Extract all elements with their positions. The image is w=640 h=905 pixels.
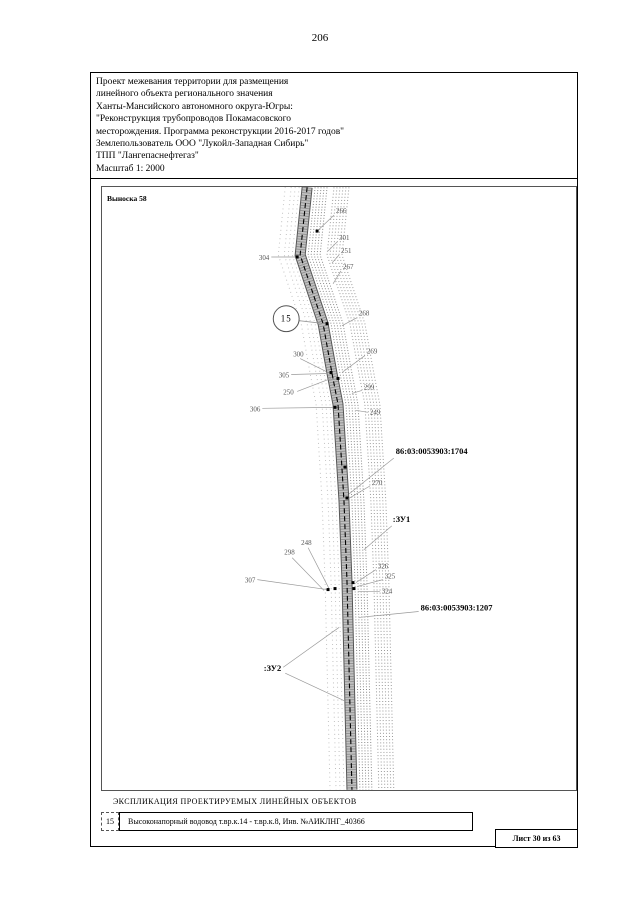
legend-row-number: 15 bbox=[101, 812, 119, 831]
leader-line bbox=[297, 378, 331, 391]
point-number-label: 307 bbox=[245, 577, 256, 585]
point-number-label: 305 bbox=[279, 371, 290, 379]
header-line: "Реконструкция трубопроводов Покамасовск… bbox=[96, 113, 572, 125]
point-number-label: 324 bbox=[382, 588, 393, 596]
point-number-label: 299 bbox=[364, 383, 375, 391]
leader-line bbox=[332, 255, 339, 263]
header-line: линейного объекта регионального значения bbox=[96, 88, 572, 100]
boundary-point-marker bbox=[327, 588, 330, 591]
point-number-label: 251 bbox=[341, 247, 352, 255]
leader-line bbox=[333, 271, 341, 284]
boundary-point-marker bbox=[316, 230, 319, 233]
point-number-label: 266 bbox=[336, 207, 347, 215]
point-number-label: 300 bbox=[293, 351, 304, 359]
leader-line bbox=[356, 570, 376, 583]
point-number-label: 249 bbox=[370, 408, 381, 416]
header-line: ТПП "Лангепаснефтегаз" bbox=[96, 150, 572, 162]
header-line: месторождения. Программа реконструкции 2… bbox=[96, 126, 572, 138]
drawing-sheet-frame: Проект межевания территории для размещен… bbox=[90, 72, 578, 847]
leader-line bbox=[283, 627, 339, 667]
leader-line bbox=[257, 580, 327, 590]
boundary-point-marker bbox=[351, 581, 354, 584]
header-line: Землепользователь ООО "Лукойл-Западная С… bbox=[96, 138, 572, 150]
point-number-label: 301 bbox=[339, 234, 350, 242]
leader-line bbox=[317, 215, 334, 231]
leader-line bbox=[328, 242, 337, 251]
point-number-label: 270 bbox=[372, 479, 383, 487]
survey-plan-svg: 2663012512673042683002693052502993062498… bbox=[102, 187, 576, 790]
boundary-point-marker bbox=[334, 406, 337, 409]
parcel-label: 86:03:0053903:1207 bbox=[421, 602, 494, 612]
parcel-label: :ЗУ1 bbox=[393, 514, 411, 524]
parcel-label: 86:03:0053903:1704 bbox=[396, 446, 469, 456]
leader-line bbox=[308, 548, 329, 589]
title-block: Проект межевания территории для размещен… bbox=[91, 73, 577, 179]
point-number-label: 250 bbox=[283, 388, 294, 396]
document-page: 206 Проект межевания территории для разм… bbox=[0, 0, 640, 905]
leader-line bbox=[342, 318, 357, 326]
page-number: 206 bbox=[0, 32, 640, 44]
leader-line bbox=[356, 410, 368, 412]
map-view: Выноска 58 26630125126730426830026930525… bbox=[101, 186, 577, 791]
boundary-point-marker bbox=[330, 371, 333, 374]
point-number-label: 298 bbox=[284, 549, 295, 557]
legend-row: 15 Высоконапорный водовод т.вр.к.14 - т.… bbox=[101, 812, 473, 831]
point-number-label: 326 bbox=[378, 563, 389, 571]
boundary-point-marker bbox=[296, 255, 299, 258]
header-line: Масштаб 1: 2000 bbox=[96, 163, 572, 175]
boundary-point-marker bbox=[345, 496, 348, 499]
point-number-label: 269 bbox=[367, 348, 378, 356]
header-line: Проект межевания территории для размещен… bbox=[96, 76, 572, 88]
boundary-point-marker bbox=[337, 377, 340, 380]
leader-line bbox=[300, 359, 326, 372]
boundary-point-marker bbox=[326, 322, 329, 325]
header-line: Ханты-Мансийского автономного округа-Югр… bbox=[96, 101, 572, 113]
sheet-counter: Лист 30 из 63 bbox=[495, 829, 578, 848]
point-number-label: 304 bbox=[259, 254, 270, 262]
leader-line bbox=[285, 673, 345, 701]
boundary-point-marker bbox=[352, 587, 355, 590]
point-number-label: 306 bbox=[250, 405, 261, 413]
point-number-label: 268 bbox=[359, 310, 370, 318]
leader-line bbox=[342, 356, 365, 373]
boundary-point-marker bbox=[343, 466, 346, 469]
leader-line bbox=[352, 390, 362, 393]
point-number-label: 325 bbox=[385, 573, 396, 581]
leader-line bbox=[262, 407, 333, 408]
callout-label: Выноска 58 bbox=[107, 194, 147, 203]
point-number-label: 267 bbox=[343, 263, 354, 271]
object-number-label: 15 bbox=[281, 314, 292, 324]
easement-boundary-left bbox=[292, 187, 344, 789]
legend-title: ЭКСПЛИКАЦИЯ ПРОЕКТИРУЕМЫХ ЛИНЕЙНЫХ ОБЪЕК… bbox=[113, 797, 357, 806]
point-number-label: 248 bbox=[301, 539, 312, 547]
leader-line bbox=[291, 373, 328, 374]
legend-row-description: Высоконапорный водовод т.вр.к.14 - т.вр.… bbox=[119, 812, 473, 831]
leader-line bbox=[292, 558, 324, 591]
easement-boundary-left bbox=[288, 187, 340, 789]
boundary-point-marker bbox=[334, 587, 337, 590]
parcel-label: :ЗУ2 bbox=[264, 663, 282, 673]
